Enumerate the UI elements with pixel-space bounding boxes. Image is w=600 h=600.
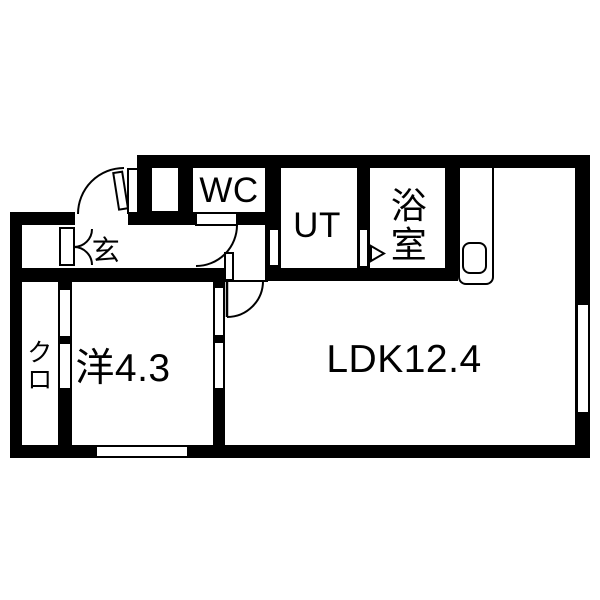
room-label-wc: WC bbox=[199, 171, 258, 211]
ldk-door-frame bbox=[224, 252, 234, 281]
room-label-entrance: 玄 bbox=[92, 229, 121, 269]
bath-door-triangle-icon bbox=[371, 246, 384, 261]
closet-divider-low bbox=[58, 390, 72, 447]
shoe-cabinet-door-arc-bottom bbox=[74, 247, 92, 265]
wall-entry-a bbox=[10, 212, 75, 225]
entrance-door-arc bbox=[78, 168, 124, 214]
bath-door bbox=[358, 228, 369, 268]
kitchen-sink bbox=[462, 242, 487, 274]
shoe-cabinet bbox=[60, 228, 74, 265]
room-label-bath-char2: 室 bbox=[391, 216, 428, 268]
door-symbols-layer bbox=[0, 0, 600, 600]
entrance-storage bbox=[150, 166, 180, 213]
entrance-door-leaf-a bbox=[113, 172, 128, 210]
window-bottom bbox=[97, 447, 187, 456]
closet-slide-panel-1 bbox=[58, 288, 72, 338]
floor-plan: WC UT 浴 室 玄 ク ロ 洋4.3 LDK12.4 bbox=[0, 0, 600, 600]
room-label-closet-char2: ロ bbox=[27, 360, 53, 396]
wall-entry-corner bbox=[137, 155, 150, 225]
wall-corridor-bottom bbox=[10, 268, 225, 282]
wall-left bbox=[10, 212, 22, 458]
window-right bbox=[578, 305, 588, 412]
ldk-door-arc bbox=[227, 281, 263, 317]
room-label-ldk: LDK12.4 bbox=[326, 338, 481, 382]
wall-entry-c bbox=[237, 212, 265, 225]
wc-door-leaf bbox=[196, 213, 237, 225]
room-slide-panel-2 bbox=[213, 341, 225, 390]
room-slide-panel-1 bbox=[213, 286, 225, 337]
shoe-cabinet-door-arc-top bbox=[74, 229, 92, 247]
wall-wc-left bbox=[180, 168, 193, 225]
room-label-western: 洋4.3 bbox=[75, 337, 170, 393]
wall-water-bottom bbox=[265, 268, 458, 281]
room-label-ut: UT bbox=[293, 206, 341, 246]
room-divider-low bbox=[213, 390, 225, 445]
closet-slide-panel-2 bbox=[58, 342, 72, 390]
ut-door bbox=[268, 228, 281, 267]
wall-bath-right bbox=[445, 155, 458, 281]
